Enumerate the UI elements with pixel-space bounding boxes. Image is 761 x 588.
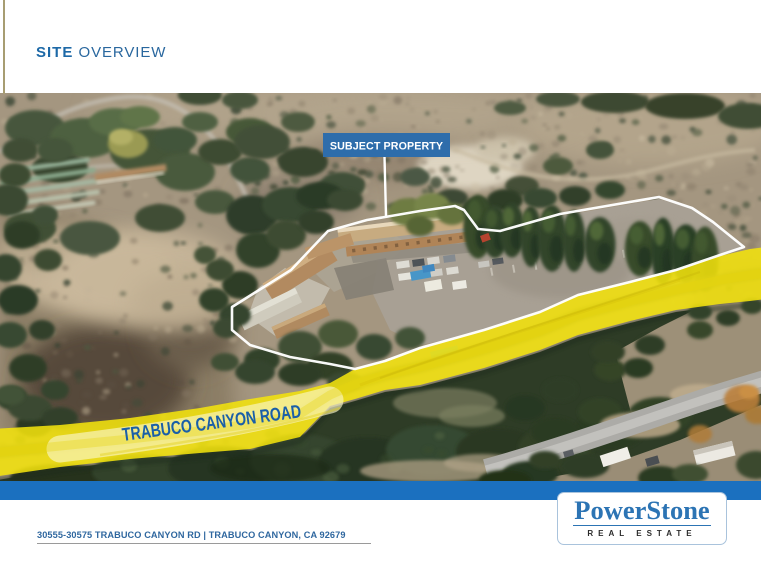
svg-text:SUBJECT PROPERTY: SUBJECT PROPERTY (330, 141, 443, 153)
